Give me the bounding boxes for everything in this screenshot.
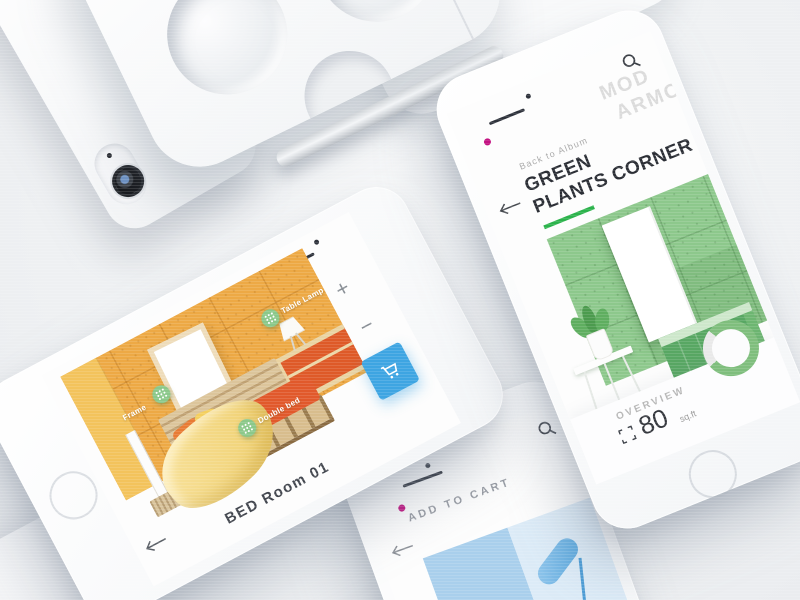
watermark-text: MOD ARMC (596, 35, 735, 128)
home-button[interactable] (682, 443, 744, 505)
back-arrow-icon[interactable] (389, 539, 416, 559)
menu-dot-icon (525, 93, 532, 100)
search-icon[interactable] (536, 418, 559, 441)
design-mockup-scene: ADD TO CART (0, 0, 800, 600)
mic-dot-icon (106, 152, 113, 159)
camera-module (87, 136, 154, 211)
zoom-out-button[interactable]: − (355, 311, 379, 340)
shopping-cart-icon (377, 358, 404, 385)
camera-lens-icon (106, 159, 150, 203)
menu-dot-icon (425, 462, 431, 468)
menu-dot-icon (313, 239, 320, 246)
notification-dot (483, 137, 492, 146)
vr-eye-hole-right (296, 0, 456, 42)
back-arrow-icon[interactable] (496, 197, 523, 218)
zoom-in-button[interactable]: + (331, 274, 355, 303)
vr-eye-hole-left (147, 0, 307, 115)
notification-dot (397, 504, 406, 513)
menu-dash-icon[interactable] (402, 471, 443, 488)
menu-dash-icon[interactable] (489, 108, 525, 125)
add-to-cart-button[interactable]: ADD TO CART (406, 476, 512, 524)
